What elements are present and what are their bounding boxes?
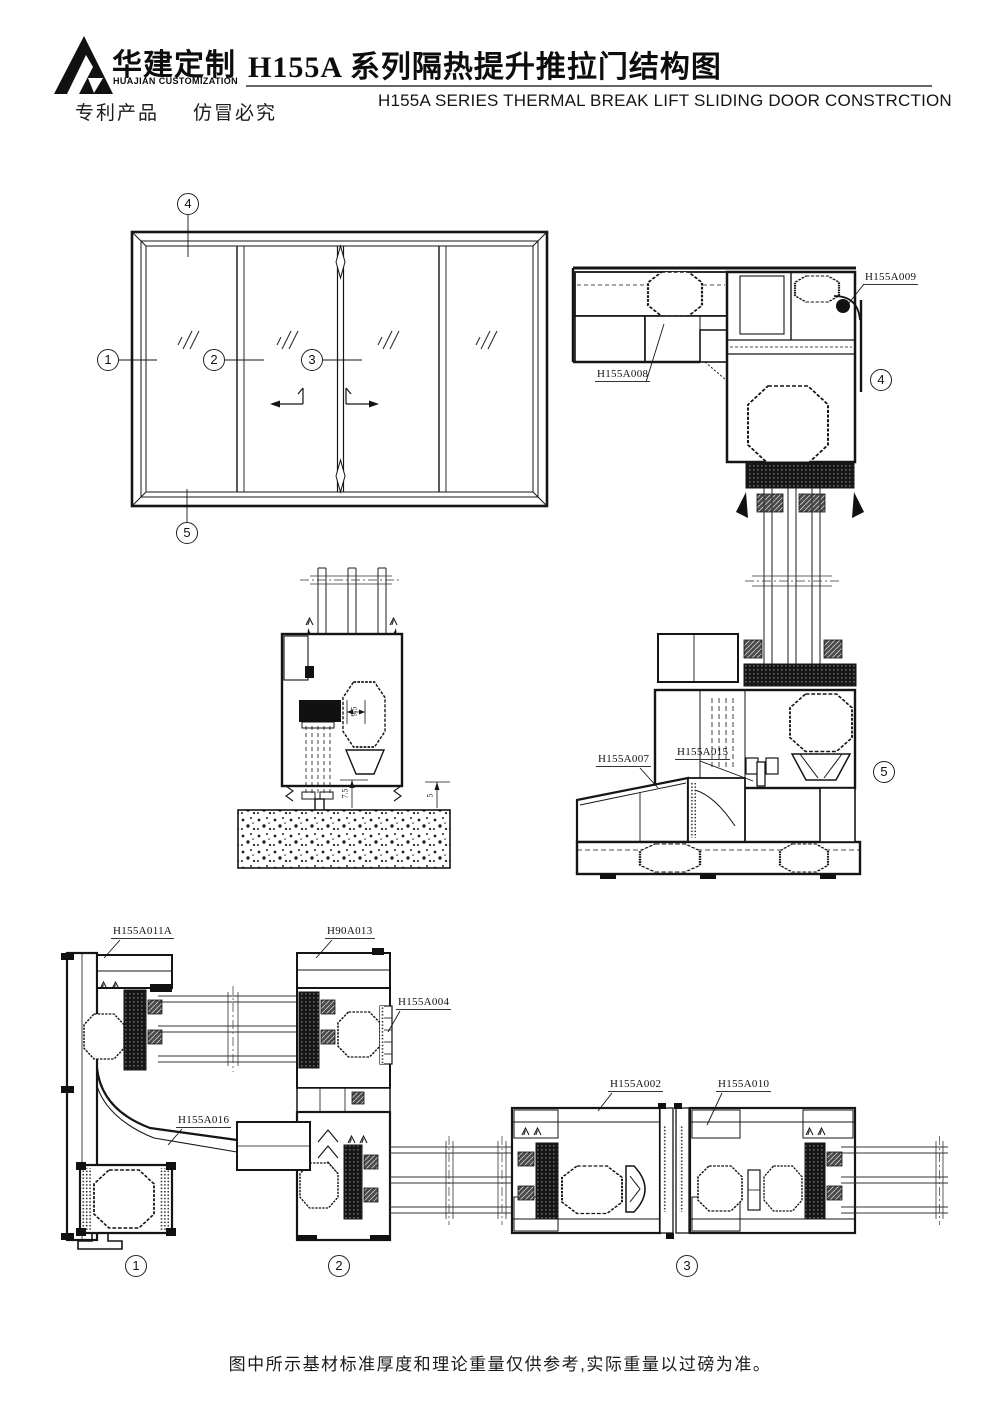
callout-4-elevation: 4 bbox=[177, 193, 199, 215]
glass-vertical-right bbox=[745, 488, 840, 664]
footer-note: 图中所示基材标准厚度和理论重量仅供参考,实际重量以过磅为准。 bbox=[0, 1350, 1000, 1375]
slide-arrow-left bbox=[270, 388, 303, 408]
sill-section-drawing bbox=[238, 568, 450, 868]
part-label-h155a016: H155A016 bbox=[176, 1114, 231, 1128]
section-4-drawing bbox=[573, 268, 864, 518]
page-title: H155A 系列隔热提升推拉门结构图 bbox=[248, 42, 722, 86]
callout-3-elevation: 3 bbox=[301, 349, 323, 371]
elevation-drawing bbox=[119, 215, 547, 522]
part-label-h155a007: H155A007 bbox=[596, 753, 651, 767]
callout-1-section: 1 bbox=[125, 1255, 147, 1277]
slide-arrow-right bbox=[346, 388, 379, 408]
part-label-h155a002: H155A002 bbox=[608, 1078, 663, 1092]
part-label-h155a008: H155A008 bbox=[595, 368, 650, 382]
drawing-sheet: { "header": { "logo_cn": "华建定制", "logo_e… bbox=[0, 0, 1000, 1415]
callout-2-section: 2 bbox=[328, 1255, 350, 1277]
callout-5-section: 5 bbox=[873, 761, 895, 783]
section-3-drawing bbox=[512, 1093, 948, 1239]
part-label-h155a015: H155A015 bbox=[675, 746, 730, 760]
elevation-callout-leaders bbox=[119, 215, 362, 522]
callout-4-section: 4 bbox=[870, 369, 892, 391]
patent-notice-right: 仿冒必究 bbox=[193, 98, 277, 125]
patent-notice-left: 专利产品 bbox=[75, 98, 159, 125]
callout-3-section: 3 bbox=[676, 1255, 698, 1277]
drawing-linework bbox=[0, 0, 1000, 1415]
section-1-2-drawing bbox=[61, 940, 536, 1249]
part-label-h90a013: H90A013 bbox=[325, 925, 375, 939]
part-label-h155a011a: H155A011A bbox=[111, 925, 174, 939]
patent-notice: 专利产品 仿冒必究 bbox=[75, 98, 277, 125]
dimension-5: 5 bbox=[426, 794, 435, 798]
page-subtitle: H155A SERIES THERMAL BREAK LIFT SLIDING … bbox=[378, 91, 952, 111]
callout-1-elevation: 1 bbox=[97, 349, 119, 371]
part-label-h155a009: H155A009 bbox=[863, 271, 918, 285]
logo-mark bbox=[54, 36, 113, 94]
callout-5-elevation: 5 bbox=[176, 522, 198, 544]
dimension-7-5: 7.5 bbox=[341, 789, 350, 799]
part-label-h155a010: H155A010 bbox=[716, 1078, 771, 1092]
logo-text-en: HUAJIAN CUSTOMIZATION bbox=[113, 76, 238, 86]
part-label-h155a004: H155A004 bbox=[396, 996, 451, 1010]
callout-2-elevation: 2 bbox=[203, 349, 225, 371]
dimension-9-5: 9.5 bbox=[350, 707, 359, 717]
